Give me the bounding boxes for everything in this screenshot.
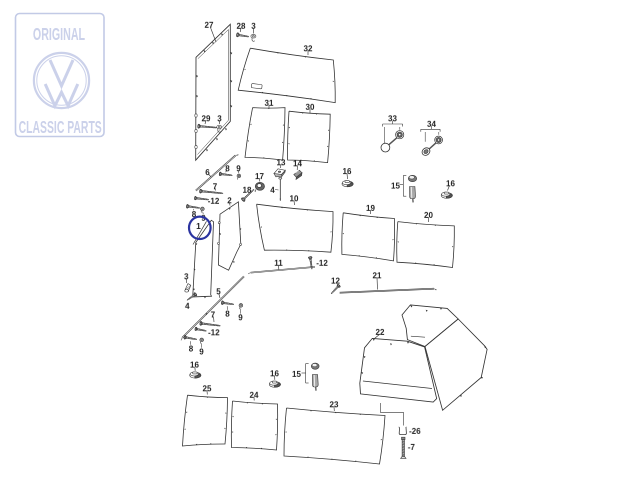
svg-text:-7: -7 (408, 443, 416, 452)
svg-text:13: 13 (277, 158, 286, 167)
svg-text:16: 16 (446, 179, 455, 188)
svg-text:15: 15 (292, 370, 301, 379)
svg-text:34: 34 (427, 120, 436, 129)
svg-text:-12: -12 (316, 259, 328, 268)
svg-text:3: 3 (217, 114, 222, 123)
svg-text:-12: -12 (208, 328, 220, 337)
svg-text:8: 8 (225, 310, 230, 319)
svg-text:4: 4 (185, 302, 190, 311)
svg-text:12: 12 (331, 277, 340, 286)
svg-text:-26: -26 (409, 427, 421, 436)
svg-text:22: 22 (376, 328, 385, 337)
svg-text:15: 15 (391, 182, 400, 191)
svg-text:6: 6 (205, 168, 210, 177)
svg-text:27: 27 (205, 21, 214, 30)
svg-text:ORIGINAL: ORIGINAL (33, 25, 85, 44)
svg-text:14: 14 (293, 159, 302, 168)
svg-text:1: 1 (196, 221, 201, 231)
svg-text:5: 5 (216, 287, 221, 296)
svg-text:8: 8 (189, 344, 194, 353)
svg-text:29: 29 (202, 114, 211, 123)
svg-text:18: 18 (243, 186, 252, 195)
svg-text:9: 9 (199, 347, 204, 356)
svg-text:33: 33 (388, 114, 397, 123)
svg-text:28: 28 (237, 22, 246, 31)
svg-text:-12: -12 (208, 197, 220, 206)
svg-text:9: 9 (238, 313, 243, 322)
svg-text:4: 4 (270, 186, 275, 195)
svg-text:CLASSIC PARTS: CLASSIC PARTS (19, 118, 102, 138)
svg-text:7: 7 (211, 310, 216, 319)
